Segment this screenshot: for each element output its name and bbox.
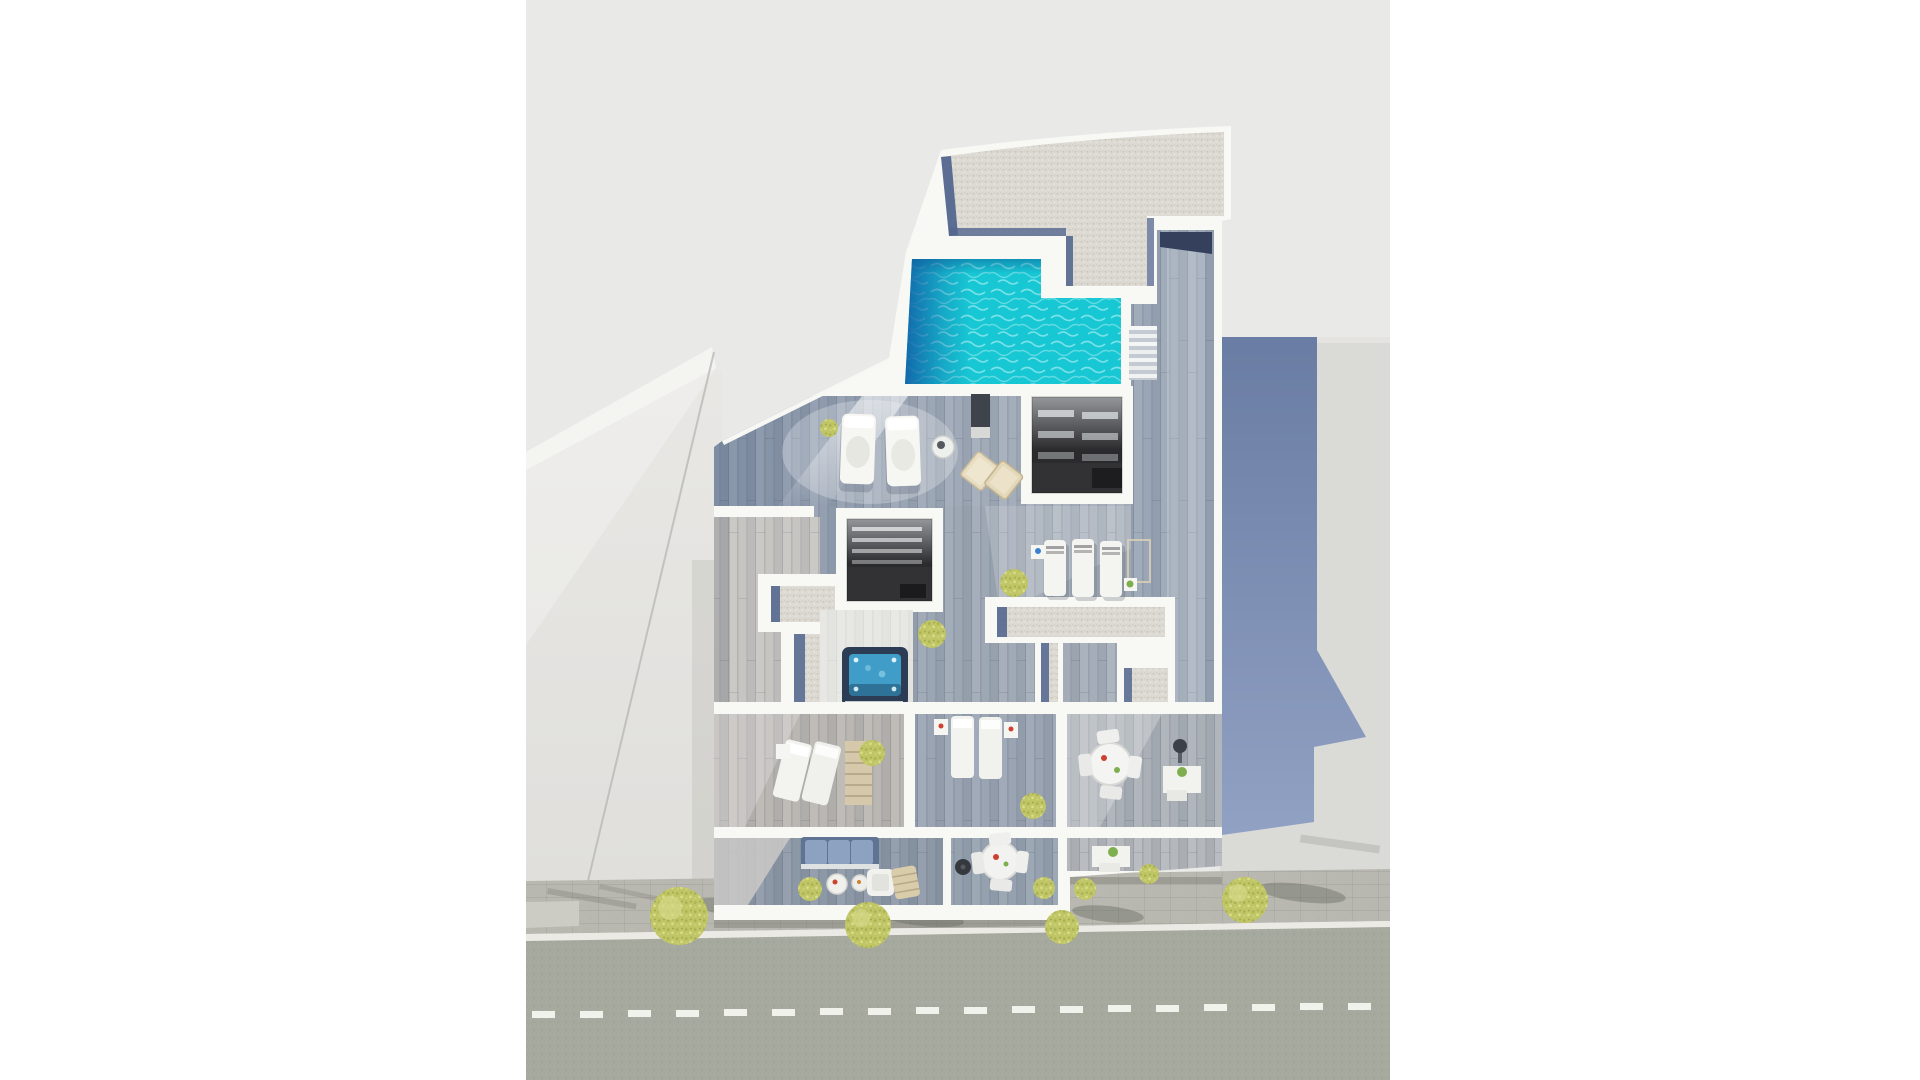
skylight-well-1: [1021, 386, 1133, 504]
road-asphalt: [526, 927, 1390, 1080]
planter: [1020, 793, 1046, 819]
terrace-middle: [915, 714, 1061, 827]
sun-bed: [838, 413, 876, 492]
outdoor-sofa: [801, 837, 879, 869]
balcony-left: [714, 837, 943, 905]
shrub: [1074, 878, 1096, 900]
balcony-middle: [951, 832, 1058, 905]
tree: [650, 887, 708, 945]
side-table: [776, 744, 790, 759]
tree: [1222, 877, 1268, 923]
planter: [859, 740, 885, 766]
render-stage: Aerial top-down 3D render of a rooftop a…: [0, 0, 1920, 1080]
neighbor-building-right: [1220, 337, 1390, 871]
side-table-round: [932, 436, 954, 458]
stairs: [1129, 326, 1157, 380]
planter: [820, 419, 838, 437]
terrace-right: [1067, 714, 1222, 827]
planter: [1033, 877, 1055, 899]
planter: [1000, 569, 1028, 597]
skylight-well-2: [836, 508, 943, 612]
tree: [845, 902, 891, 948]
shrub: [1139, 864, 1159, 884]
coffee-table: [827, 874, 847, 894]
planter: [918, 620, 946, 648]
tree: [1045, 910, 1079, 944]
sun-bed: [884, 415, 922, 494]
wicker-chair: [891, 865, 921, 900]
driveway-strip: [526, 901, 579, 928]
terrace-left: [714, 714, 908, 827]
planter: [798, 877, 822, 901]
outdoor-shower: [971, 394, 990, 438]
aerial-render: Aerial top-down 3D render of a rooftop a…: [0, 0, 1920, 1080]
